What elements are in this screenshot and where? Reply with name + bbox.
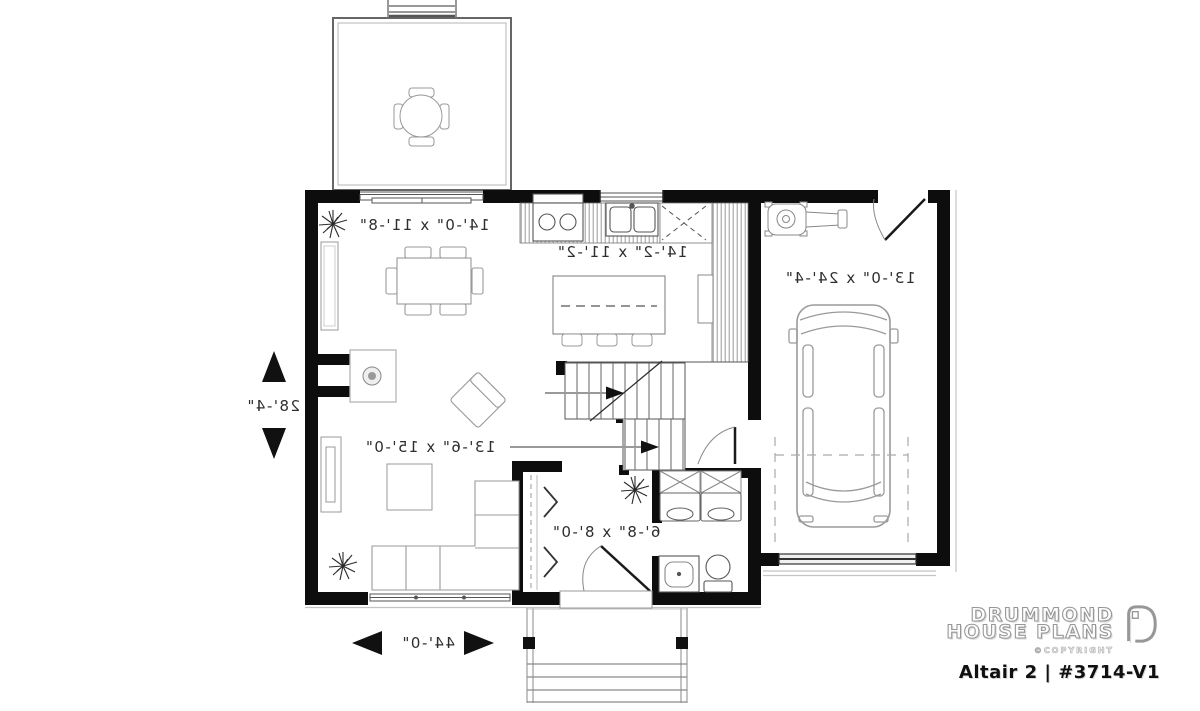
floor-plan-page: 14'-0" x 11'-8" 14'-2" x 11'-2" 13'-0" x… [0,0,1200,711]
fireplace [318,350,396,402]
staircase [565,361,685,470]
refrigerator [698,275,713,323]
drummond-d-logo-icon [1122,603,1160,645]
stove-icon [533,194,583,241]
brand-line2: HOUSE PLANS [946,624,1114,641]
vanity-sink-icon [659,556,699,592]
lawnmower-icon [765,202,847,236]
brand-name: DRUMMOND HOUSE PLANS [946,607,1114,642]
overall-width-dim: 44'-0" [401,634,455,652]
dining-table [386,247,483,315]
logo-block: DRUMMOND HOUSE PLANS ©COPYRIGHT Altair 2… [946,603,1160,683]
bar-stools [562,334,652,346]
washer-dryer [660,493,741,521]
plant-icon [621,476,649,504]
kitchen-dims: 14'-2" x 11'-2" [556,243,687,261]
living-room-dims: 13'-6" x 15'-0" [364,438,495,456]
tv-console [321,437,341,512]
plan-title: Altair 2 | #3714-V1 [946,662,1160,683]
entry-dims: 6'-8" x 8'-0" [552,523,661,541]
porch-posts [523,637,688,649]
copyright-text: ©COPYRIGHT [946,646,1114,655]
patio-table [394,88,449,146]
living-window [368,592,512,605]
plant-icon [319,210,347,238]
front-door [583,546,650,591]
armchair [450,372,507,429]
overall-depth-dim: 28'-4" [246,397,300,415]
sink-icon [606,203,658,236]
patio-slider-door [360,192,483,203]
deck-steps [388,0,456,18]
buffet [321,242,338,330]
garage-door-dashes [775,437,908,548]
toilet-icon [704,555,732,592]
wall-cabinets [660,471,741,493]
kitchen-island [553,276,665,334]
plant-icon [329,552,357,580]
porch-steps [527,664,687,702]
garage-entry-door [698,427,735,464]
garage-exterior-door [873,199,925,240]
dining-room-dims: 14'-0" x 11'-8" [358,216,489,234]
garage-dims: 13'-0" x 24'-4" [784,269,915,287]
garage-door [779,554,916,564]
car-icon [789,305,898,527]
kitchen-window [600,190,663,203]
coffee-table [387,464,432,510]
